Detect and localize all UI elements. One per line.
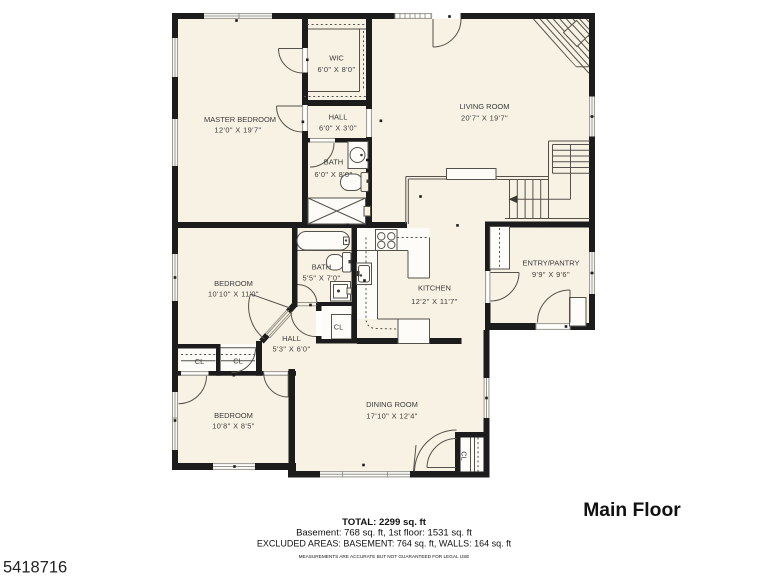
svg-text:CL: CL [195,357,204,366]
svg-text:6'0" X 8'0": 6'0" X 8'0" [315,170,353,179]
svg-text:WIC: WIC [329,54,344,63]
svg-text:CL: CL [334,323,343,332]
svg-text:HALL: HALL [329,113,348,122]
svg-text:10'8" X 8'5": 10'8" X 8'5" [212,422,254,431]
svg-text:EXCLUDED AREAS: BASEMENT: 764: EXCLUDED AREAS: BASEMENT: 764 sq. ft, WA… [257,539,512,549]
svg-text:5418716: 5418716 [3,559,67,576]
svg-text:KITCHEN: KITCHEN [418,284,451,293]
svg-text:12'0" X 19'7": 12'0" X 19'7" [215,126,262,135]
svg-text:Basement: 768 sq. ft, 1st floo: Basement: 768 sq. ft, 1st floor: 1531 sq… [296,528,472,539]
svg-text:Main Floor: Main Floor [583,500,681,521]
svg-text:DINING ROOM: DINING ROOM [366,400,418,409]
svg-text:6'0" X 8'0": 6'0" X 8'0" [318,65,356,74]
svg-text:10'10" X 11'0": 10'10" X 11'0" [208,290,259,299]
svg-text:5'3" X 6'0": 5'3" X 6'0" [273,345,311,354]
svg-text:20'7" X 19'7": 20'7" X 19'7" [461,113,508,122]
svg-text:MEASUREMENTS ARE ACCURATE BUT: MEASUREMENTS ARE ACCURATE BUT NOT GUARAN… [299,554,470,559]
svg-text:6'0" X 3'0": 6'0" X 3'0" [319,124,357,133]
svg-text:HALL: HALL [282,334,301,343]
svg-text:17'10" X 12'4": 17'10" X 12'4" [366,412,417,421]
svg-text:CL: CL [460,451,469,460]
svg-text:BEDROOM: BEDROOM [214,279,253,288]
svg-text:BATH: BATH [312,263,331,272]
svg-text:BATH: BATH [324,158,343,167]
svg-text:12'2" X 11'7": 12'2" X 11'7" [411,297,457,306]
svg-text:CL: CL [233,357,242,366]
svg-text:LIVING ROOM: LIVING ROOM [459,102,509,111]
svg-text:ENTRY/PANTRY: ENTRY/PANTRY [522,259,579,268]
svg-text:MASTER BEDROOM: MASTER BEDROOM [204,115,276,124]
svg-text:9'9" X 9'6": 9'9" X 9'6" [532,270,570,279]
svg-text:BEDROOM: BEDROOM [214,411,253,420]
svg-text:5'5" X 7'0": 5'5" X 7'0" [303,274,341,283]
